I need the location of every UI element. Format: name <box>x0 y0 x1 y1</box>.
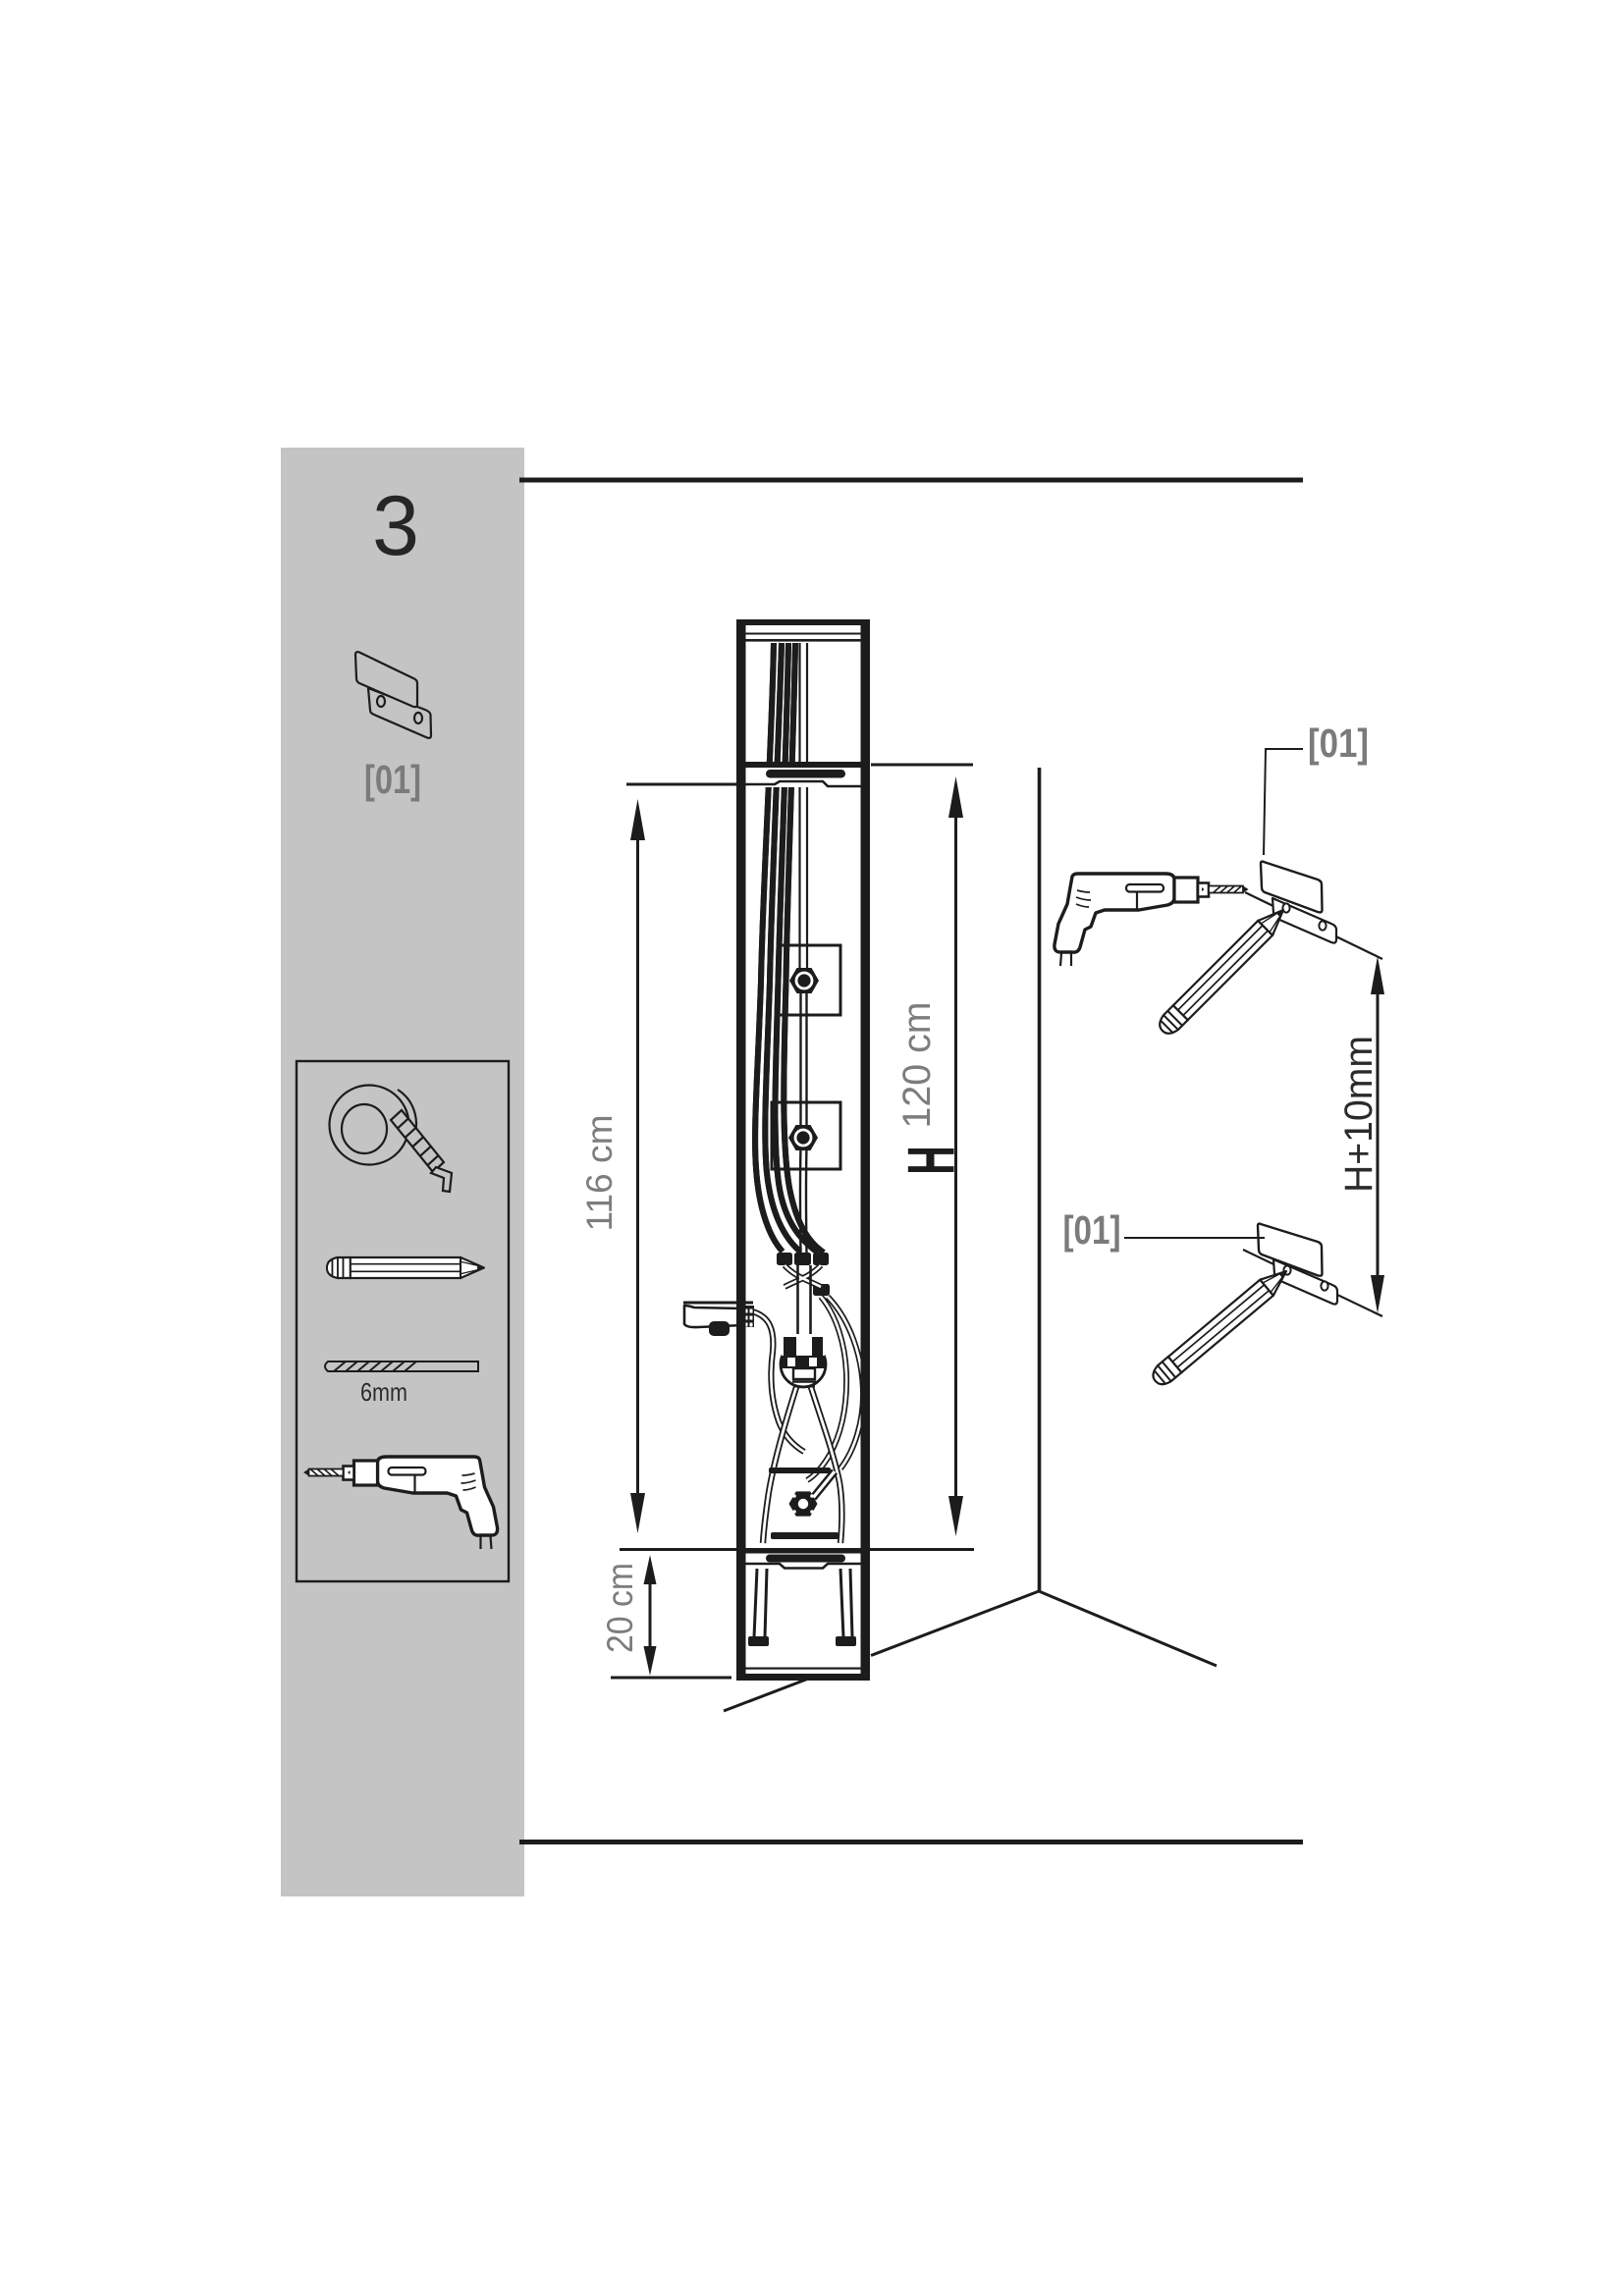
svg-text:[01]: [01] <box>1308 721 1369 766</box>
svg-text:120 cm: 120 cm <box>895 1002 939 1129</box>
svg-text:[01]: [01] <box>1063 1207 1121 1253</box>
svg-text:[01]: [01] <box>364 757 421 802</box>
svg-text:H: H <box>893 1146 968 1174</box>
svg-text:20 cm: 20 cm <box>600 1563 640 1653</box>
svg-text:3: 3 <box>372 479 419 573</box>
svg-text:116 cm: 116 cm <box>579 1115 620 1232</box>
svg-text:H+10mm: H+10mm <box>1337 1036 1380 1193</box>
svg-text:6mm: 6mm <box>360 1377 407 1407</box>
